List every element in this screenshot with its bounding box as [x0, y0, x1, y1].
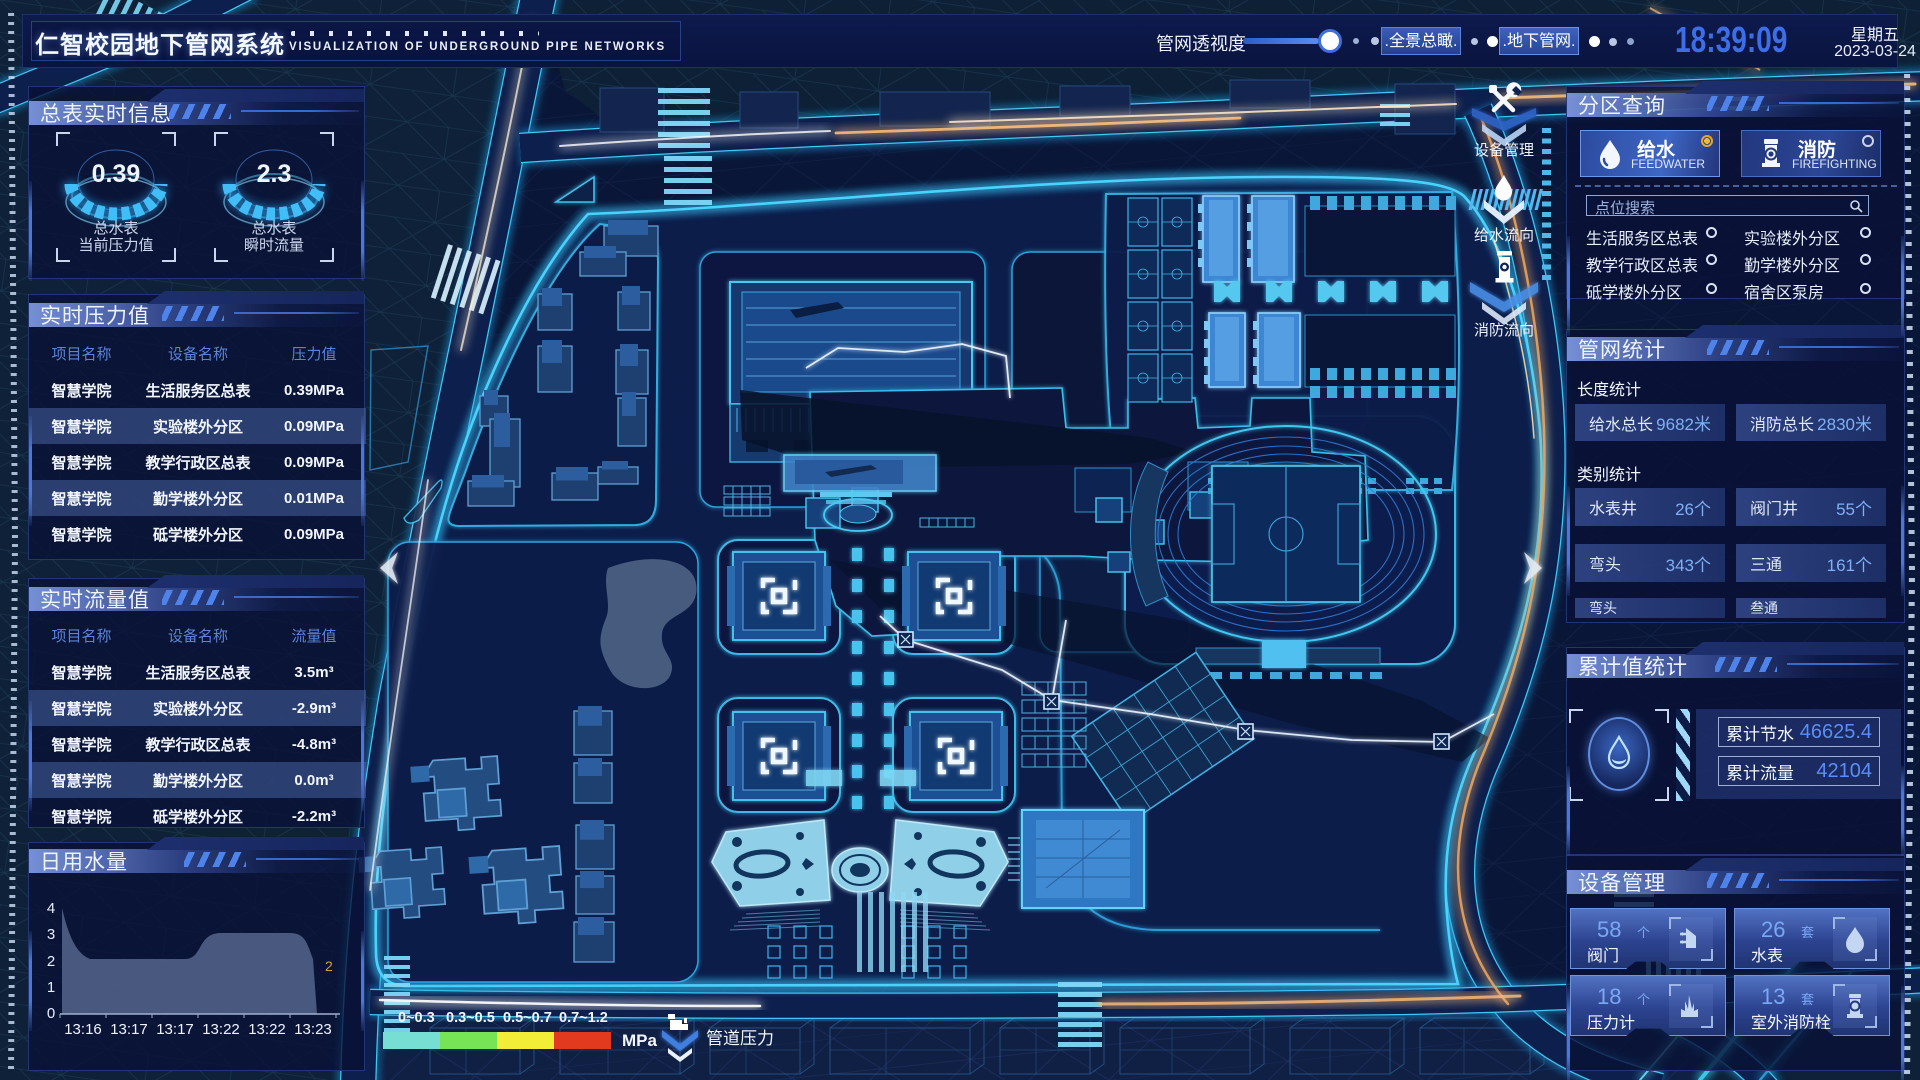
svg-text:消防流向: 消防流向 [1474, 322, 1534, 339]
svg-text:设备管理: 设备管理 [1474, 142, 1534, 159]
svg-text:2.3: 2.3 [257, 160, 292, 188]
svg-text:13:17: 13:17 [110, 1021, 148, 1038]
svg-text:给水流向: 给水流向 [1474, 227, 1534, 244]
svg-text:13:22: 13:22 [202, 1021, 240, 1038]
svg-text:3: 3 [47, 926, 55, 943]
svg-text:MPa: MPa [622, 1031, 658, 1050]
svg-text:13:23: 13:23 [294, 1021, 332, 1038]
svg-text:0: 0 [47, 1005, 55, 1022]
svg-text:1: 1 [47, 979, 55, 996]
svg-text:0.39: 0.39 [92, 160, 141, 188]
svg-text:4: 4 [47, 900, 55, 917]
svg-text:0.5~0.7: 0.5~0.7 [503, 1010, 552, 1026]
svg-text:2: 2 [325, 958, 333, 974]
svg-text:0.7~1.2: 0.7~1.2 [559, 1010, 608, 1026]
svg-text:0~0.3: 0~0.3 [398, 1010, 435, 1026]
svg-text:2: 2 [47, 953, 55, 970]
svg-text:13:22: 13:22 [248, 1021, 286, 1038]
svg-text:13:17: 13:17 [156, 1021, 194, 1038]
svg-text:0.3~0.5: 0.3~0.5 [446, 1010, 495, 1026]
svg-text:管道压力: 管道压力 [706, 1029, 774, 1048]
svg-text:13:16: 13:16 [64, 1021, 102, 1038]
